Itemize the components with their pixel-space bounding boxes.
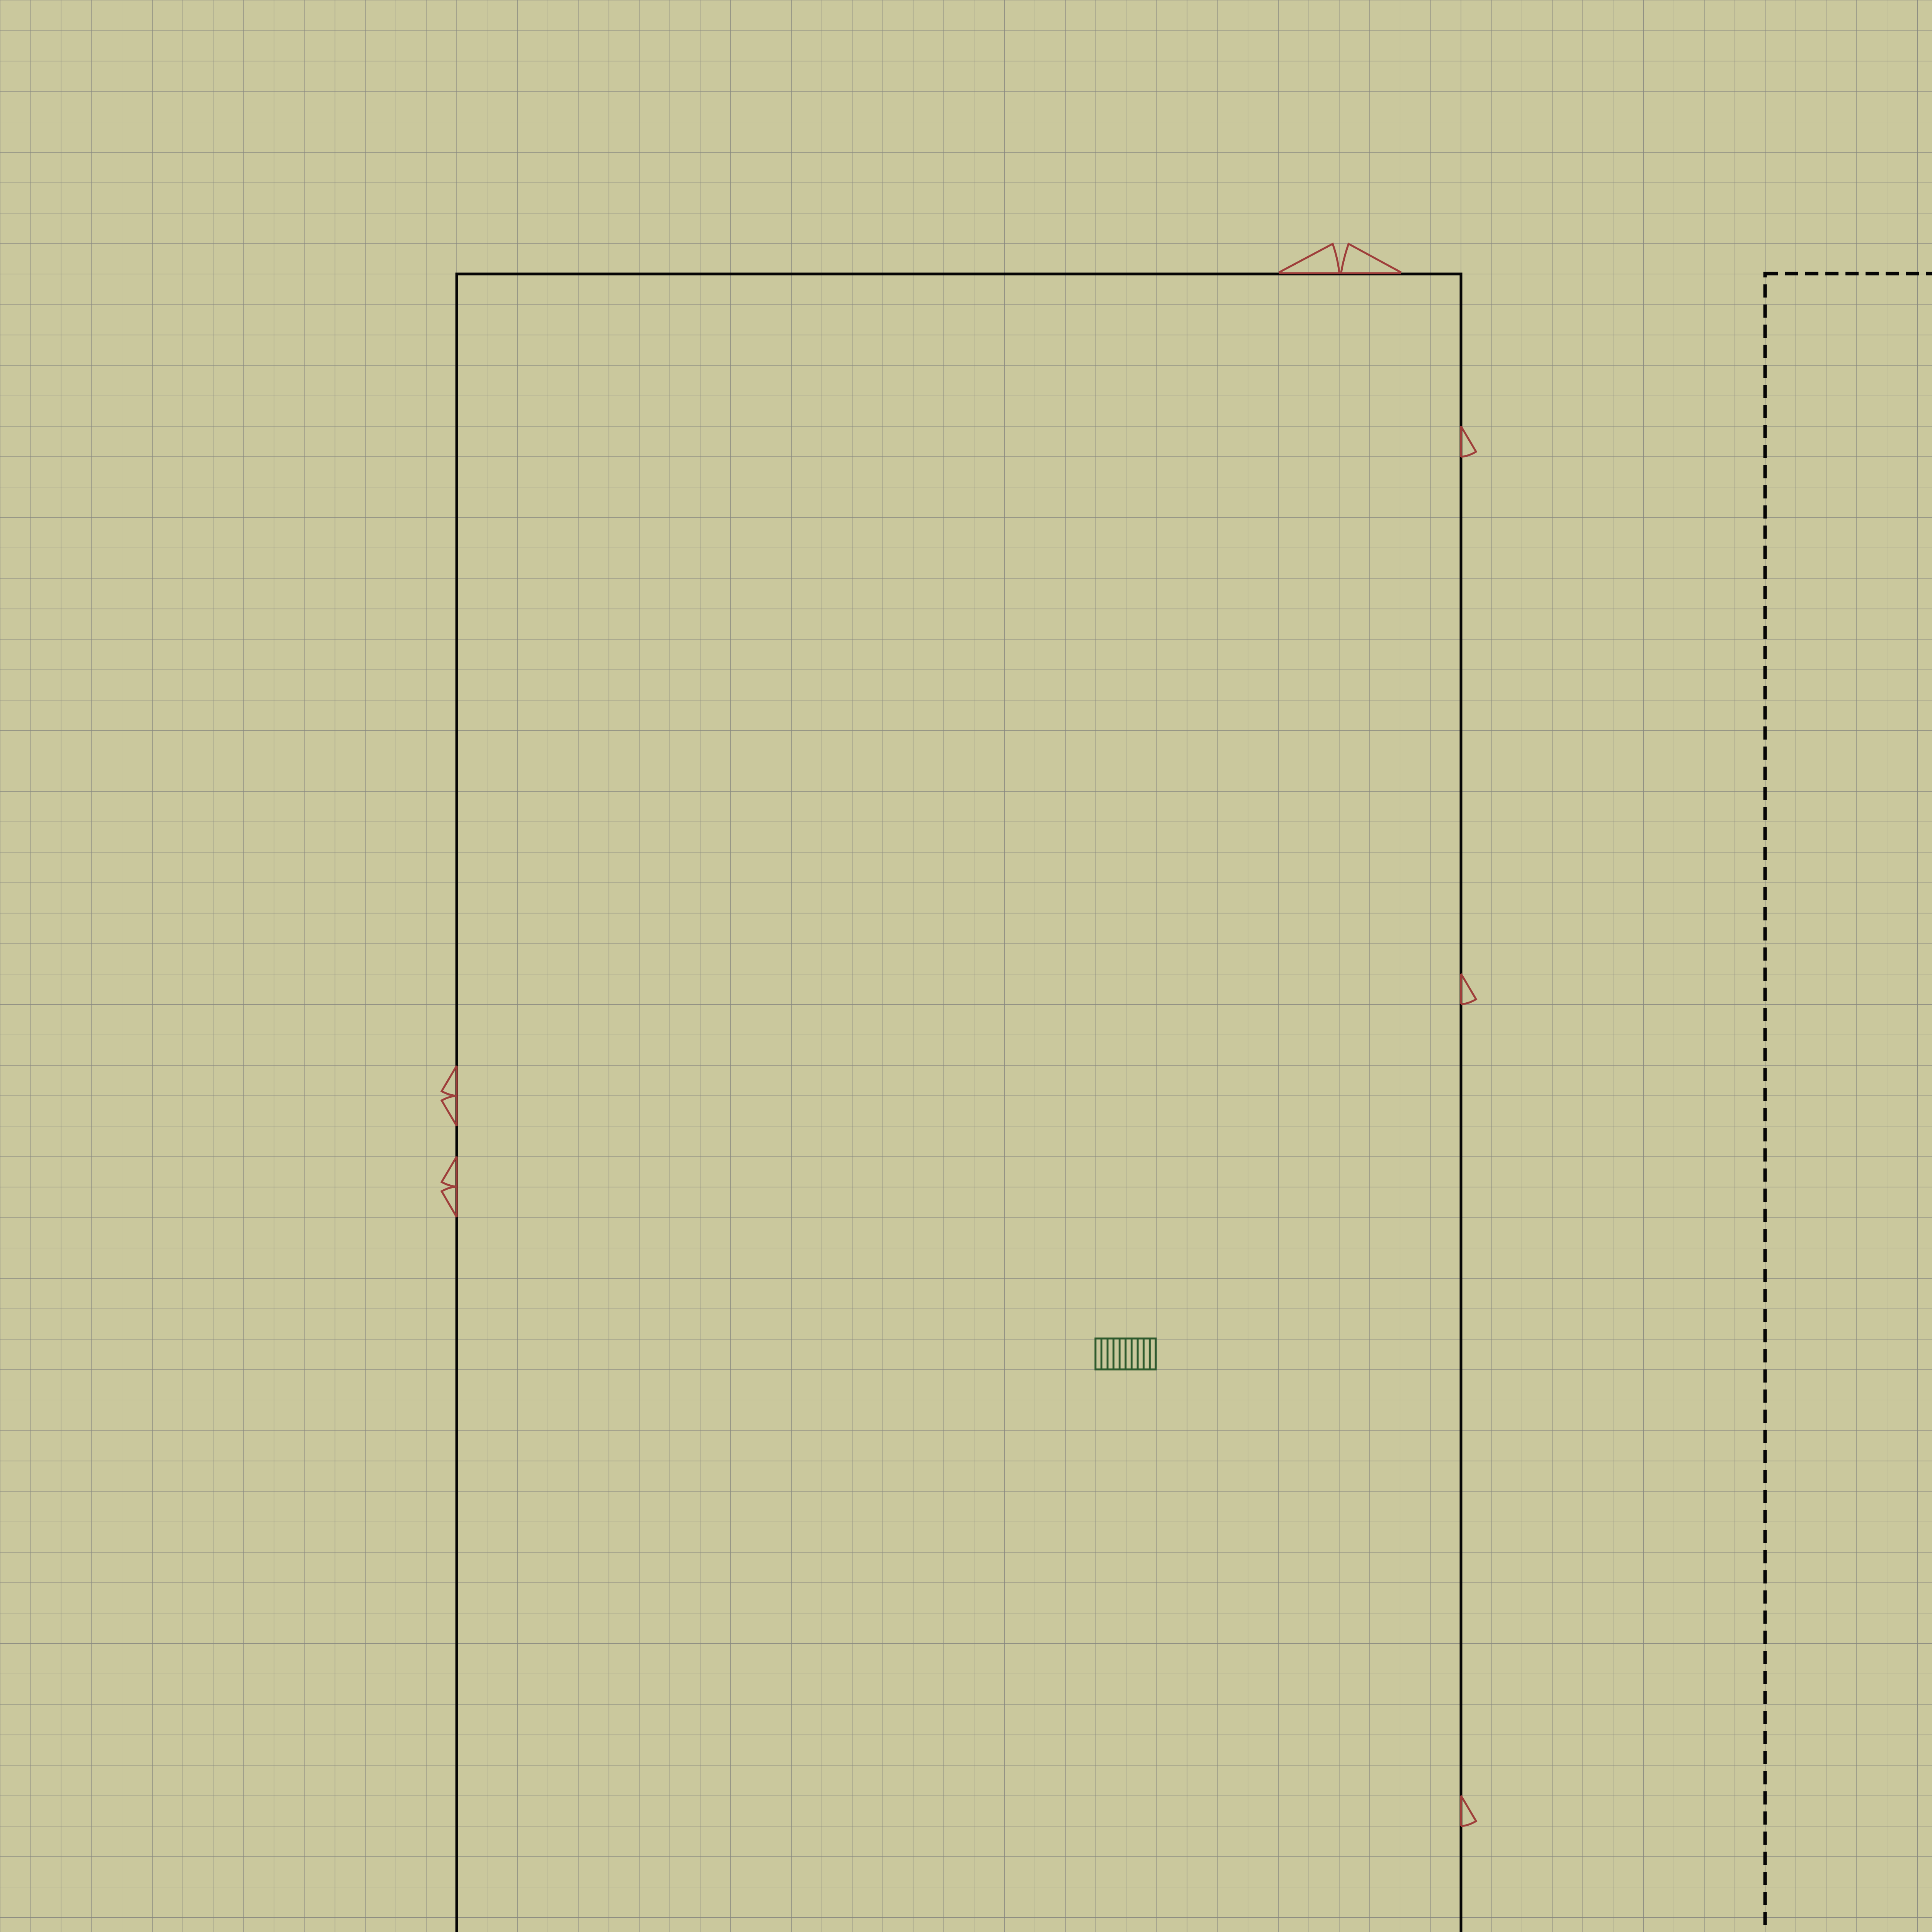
cad-viewport[interactable] [0, 0, 1932, 1932]
grid [0, 0, 1932, 1932]
drawing-canvas[interactable] [0, 0, 1932, 1932]
